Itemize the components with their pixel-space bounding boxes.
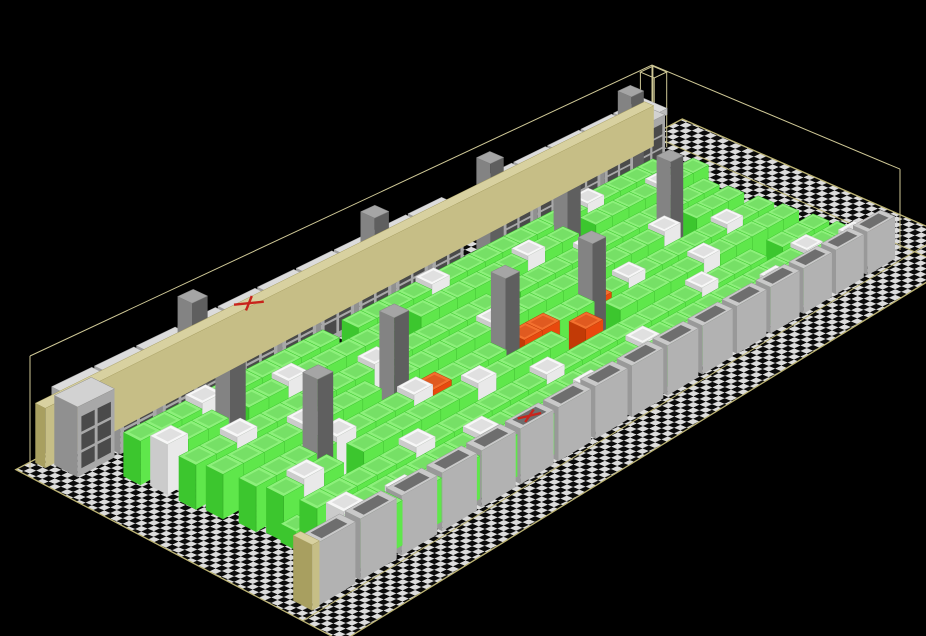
front-wall-end-panel xyxy=(293,531,319,610)
datacenter-3d-view xyxy=(0,0,926,636)
rack xyxy=(206,455,244,520)
crac-unit xyxy=(54,377,114,477)
datacenter-3d-viewport[interactable] xyxy=(0,0,926,636)
